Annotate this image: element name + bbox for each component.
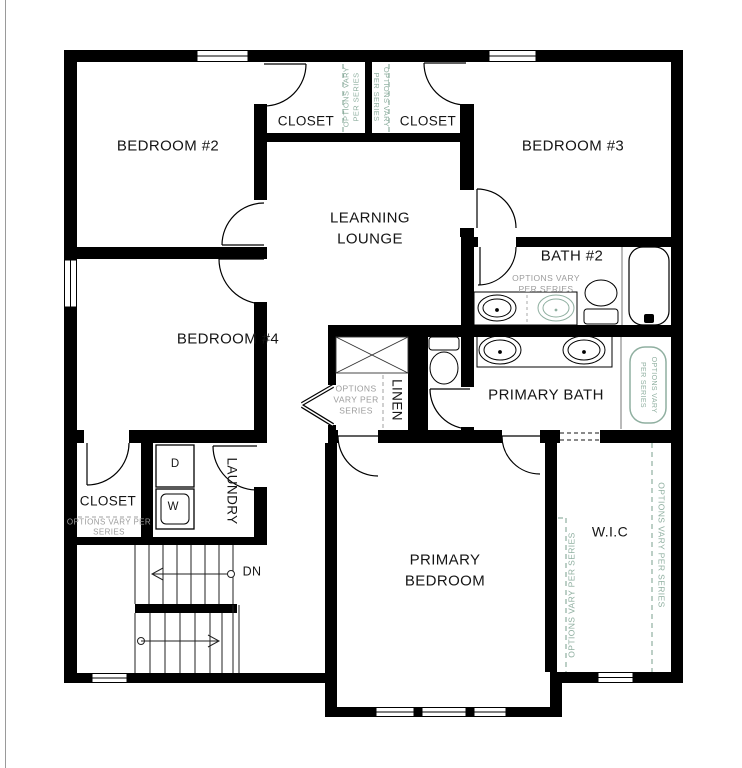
window-wic bbox=[598, 673, 633, 683]
room-label-bedroom3: BEDROOM #3 bbox=[522, 137, 624, 158]
room-label-closet-lower-left: CLOSET bbox=[80, 493, 136, 512]
window-bedroom4 bbox=[65, 260, 77, 307]
door-water-closet bbox=[430, 389, 470, 429]
options-note-top-strip-right: OPTIONS VARY PER SERIES bbox=[371, 59, 391, 135]
room-label-bedroom2: BEDROOM #2 bbox=[117, 137, 219, 158]
room-label-wic: W.I.C bbox=[592, 522, 628, 541]
room-label-primary-bath: PRIMARY BATH bbox=[488, 386, 604, 407]
floor-plan: BEDROOM #2 CLOSET CLOSET BEDROOM #3 LEAR… bbox=[0, 0, 742, 768]
primary-vanity bbox=[477, 334, 612, 367]
stairs-down-label: DN bbox=[243, 563, 262, 580]
options-note-closet-lower-left: OPTIONS VARY PER SERIES bbox=[66, 518, 152, 539]
water-closet-toilet bbox=[429, 337, 459, 384]
door-closet-top-left bbox=[264, 64, 306, 106]
room-label-linen: LINEN bbox=[387, 379, 406, 421]
attic-access-x-box bbox=[336, 337, 408, 373]
options-note-bath2: OPTIONS VARY PER SERIES bbox=[506, 273, 586, 295]
door-bedroom2 bbox=[222, 203, 264, 245]
room-label-laundry: LAUNDRY bbox=[222, 457, 241, 524]
door-bedroom4 bbox=[219, 259, 264, 304]
bathtub bbox=[629, 247, 669, 325]
door-bedroom3 bbox=[477, 189, 516, 228]
stairs-lower-flight-treads bbox=[135, 613, 222, 673]
dryer-label: D bbox=[171, 457, 179, 473]
bath2-toilet bbox=[584, 280, 618, 324]
door-primary-bedroom bbox=[338, 436, 378, 476]
window-primary-3 bbox=[474, 708, 506, 717]
door-closet-lower-left bbox=[87, 443, 129, 485]
stairs-down-arrow bbox=[152, 568, 235, 580]
room-label-primary-bedroom: PRIMARY BEDROOM bbox=[388, 550, 502, 591]
washer-label: W bbox=[168, 500, 179, 516]
options-note-wic-right: OPTIONS VARY PER SERIES bbox=[655, 445, 666, 645]
window-bedroom2 bbox=[197, 51, 248, 62]
stairs-half-wall bbox=[233, 605, 239, 673]
window-bedroom3 bbox=[489, 51, 536, 62]
bath2-optional-sink bbox=[538, 295, 574, 321]
room-label-bath2: BATH #2 bbox=[541, 247, 604, 268]
room-label-bedroom4: BEDROOM #4 bbox=[177, 330, 279, 351]
window-stairwell bbox=[92, 674, 127, 683]
options-note-top-strip-left: OPTIONS VARY PER SERIES bbox=[341, 59, 361, 135]
window-primary-1 bbox=[376, 708, 414, 717]
window-primary-2 bbox=[422, 708, 466, 717]
angled-double-doors-hall-closet bbox=[302, 386, 333, 425]
options-note-shower: OPTIONS VARY PER SERIES bbox=[637, 348, 659, 422]
room-label-closet-top-right: CLOSET bbox=[400, 113, 456, 132]
door-closet-top-right bbox=[424, 63, 466, 105]
door-wic bbox=[502, 436, 540, 474]
options-note-wic-left: OPTIONS VARY PER SERIES bbox=[566, 495, 577, 695]
room-label-closet-top-left: CLOSET bbox=[278, 113, 334, 132]
options-note-hall-closet: OPTIONS VARY PER SERIES bbox=[330, 383, 382, 416]
room-label-learning-lounge: LEARNING LOUNGE bbox=[309, 208, 431, 249]
